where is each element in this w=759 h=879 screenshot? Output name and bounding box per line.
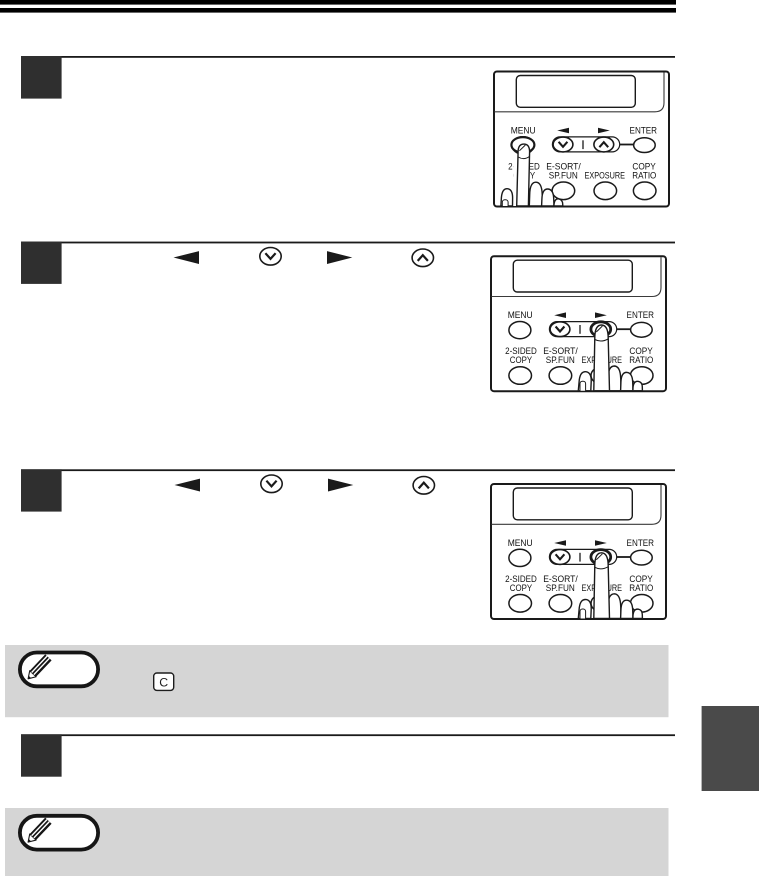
svg-text:C: C <box>159 676 168 690</box>
